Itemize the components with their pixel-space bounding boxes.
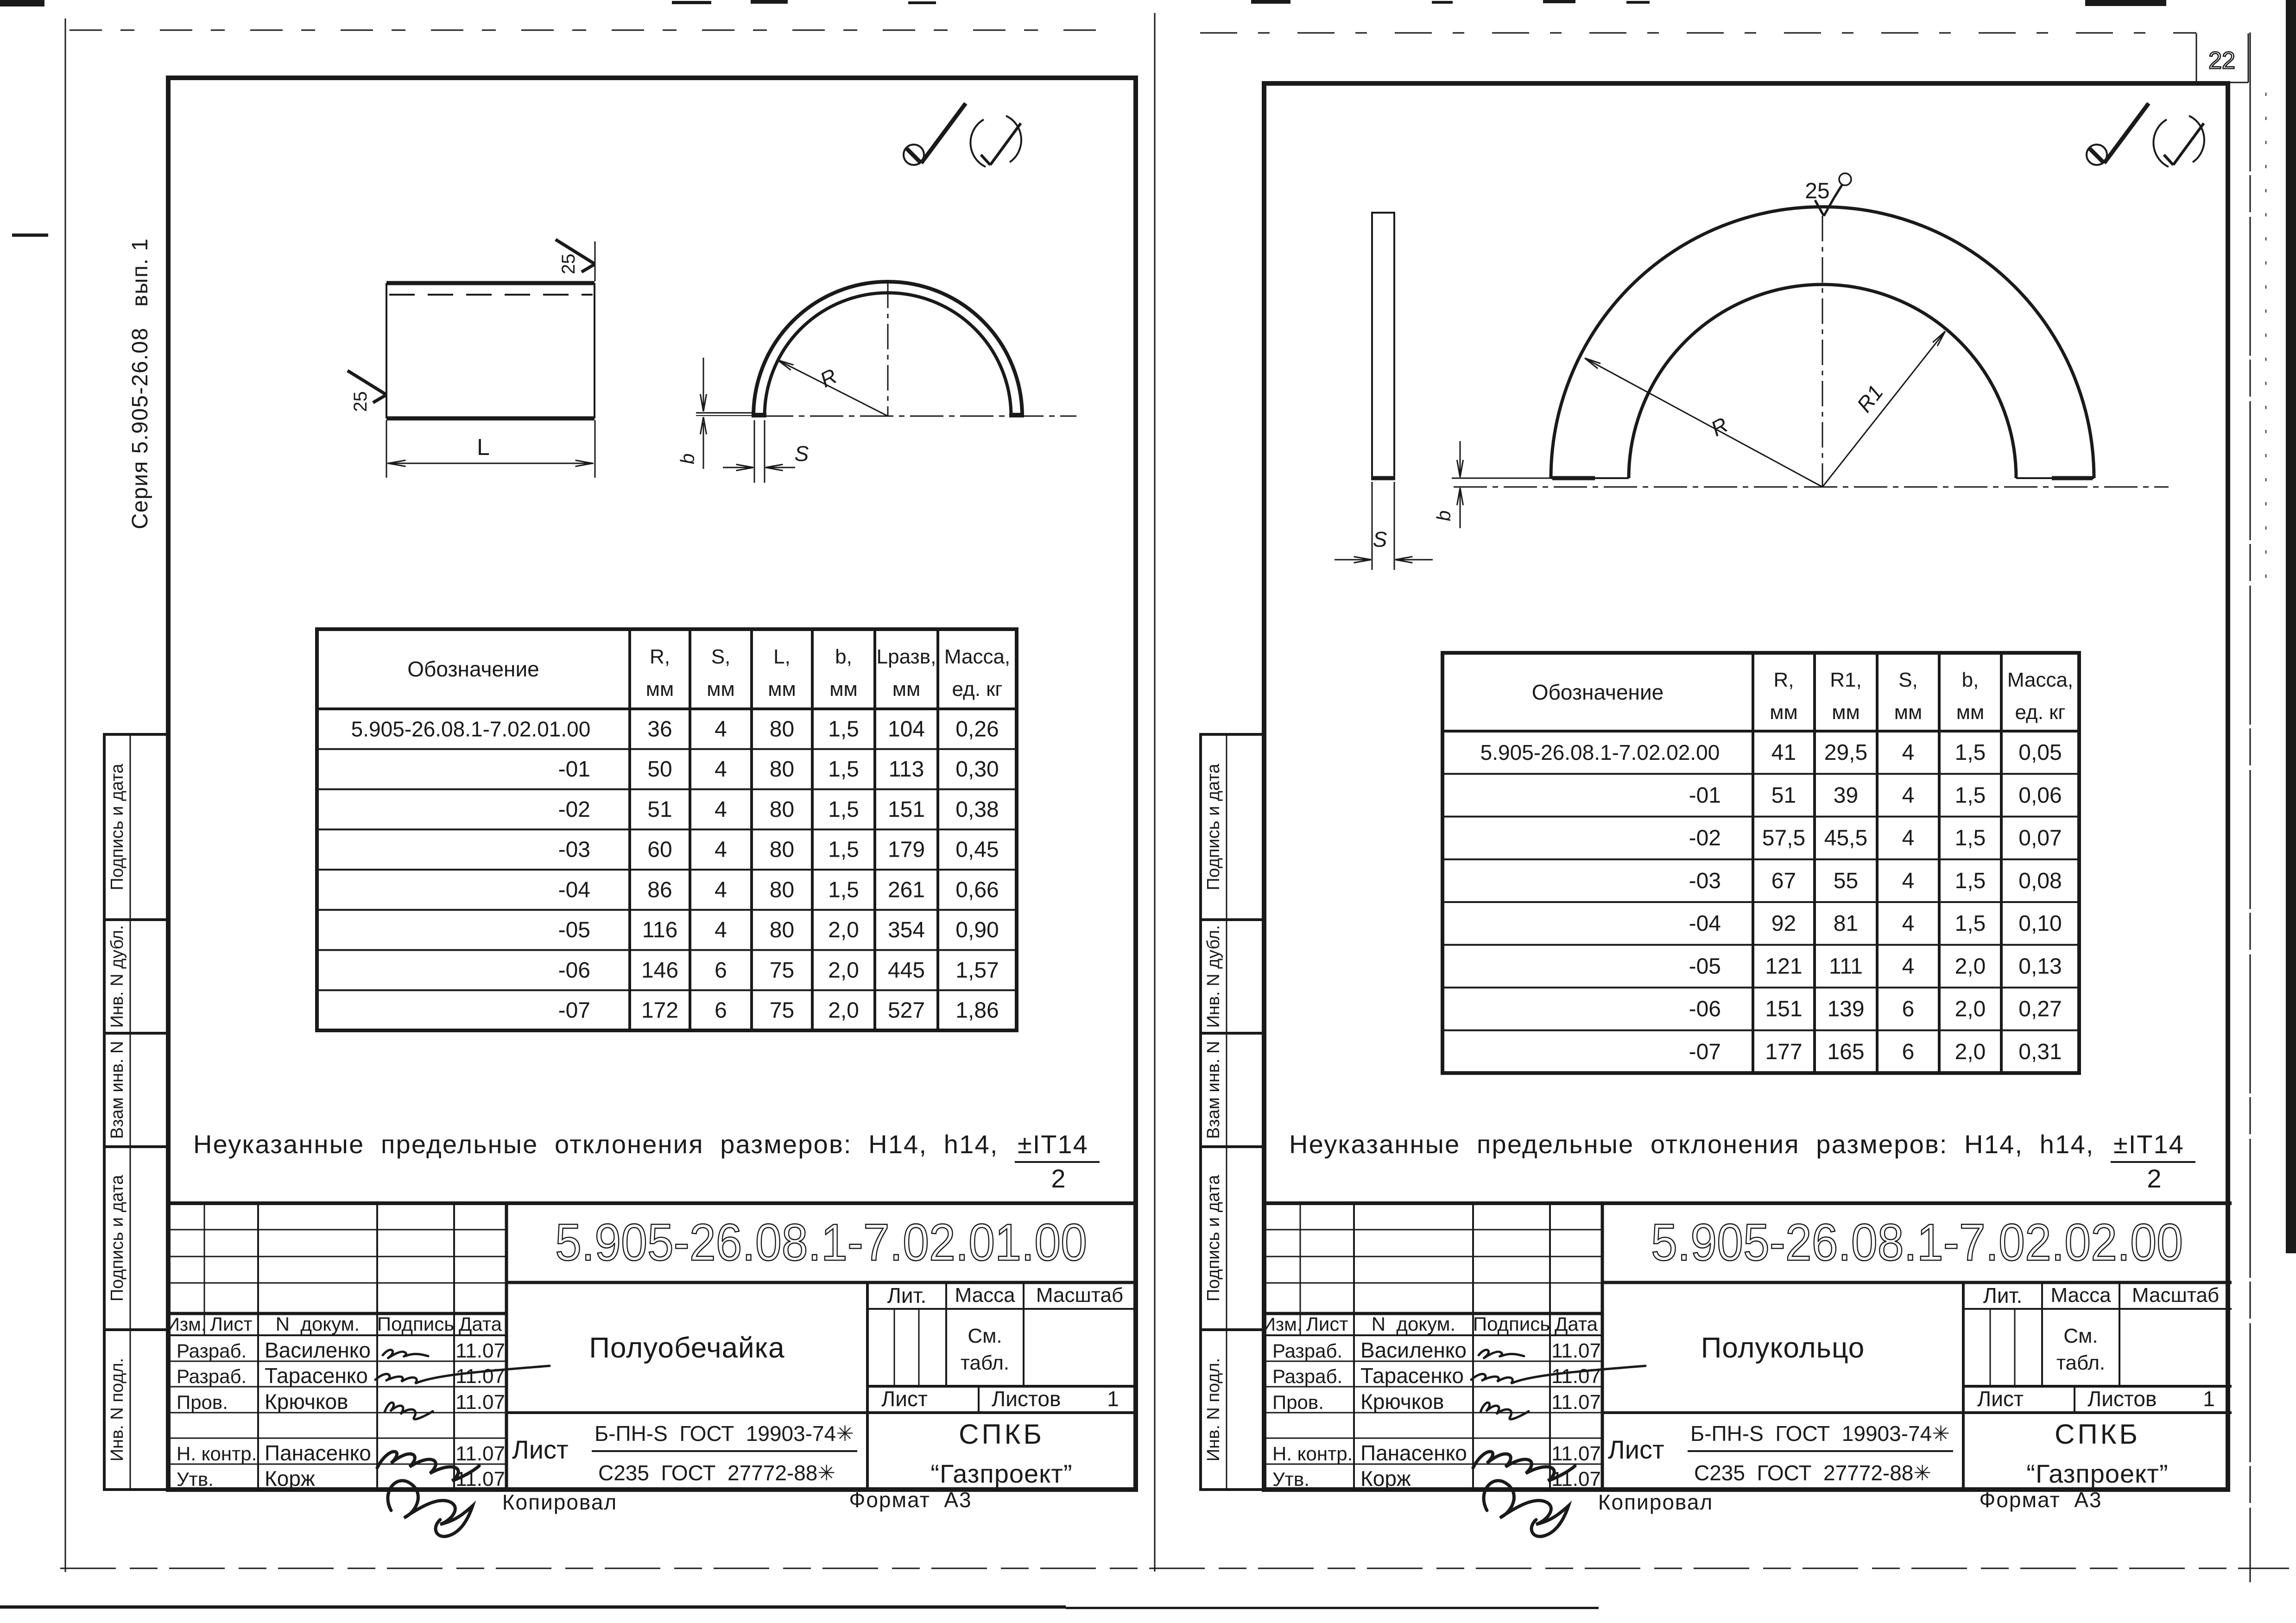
svg-text:Крючков: Крючков <box>265 1389 348 1414</box>
svg-text:Неуказанные предельные откло: Неуказанные предельные отклонения размер… <box>193 1130 999 1159</box>
svg-text:4: 4 <box>1902 869 1915 893</box>
svg-text:4: 4 <box>715 717 727 741</box>
svg-text:-05: -05 <box>558 918 590 942</box>
svg-text:0,10: 0,10 <box>2018 911 2062 936</box>
svg-text:1: 1 <box>1107 1387 1119 1411</box>
svg-text:L,: L, <box>773 645 791 668</box>
svg-text:1,5: 1,5 <box>828 757 859 782</box>
svg-text:6: 6 <box>715 958 727 983</box>
svg-text:R1,: R1, <box>1830 669 1861 691</box>
svg-text:151: 151 <box>1765 997 1802 1022</box>
svg-text:151: 151 <box>888 797 925 822</box>
svg-text:1,5: 1,5 <box>1955 783 1986 808</box>
svg-text:Разраб.: Разраб. <box>1272 1340 1342 1362</box>
svg-text:5.905-26.08.1-7.02.02.00: 5.905-26.08.1-7.02.02.00 <box>1480 740 1720 764</box>
svg-text:11.07: 11.07 <box>1551 1442 1601 1465</box>
svg-text:4: 4 <box>715 838 727 862</box>
svg-text:СПКБ: СПКБ <box>2055 1419 2140 1450</box>
svg-text:Масса,: Масса, <box>2007 669 2073 691</box>
svg-text:Утв.: Утв. <box>1272 1468 1309 1490</box>
svg-text:СПКБ: СПКБ <box>959 1419 1044 1450</box>
svg-text:0,66: 0,66 <box>955 878 999 902</box>
svg-text:Копировал: Копировал <box>502 1490 618 1514</box>
svg-text:ед. кг: ед. кг <box>952 678 1003 701</box>
svg-text:См.: См. <box>2063 1325 2098 1347</box>
svg-text:Лист: Лист <box>1608 1435 1664 1464</box>
svg-text:b: b <box>1433 511 1455 521</box>
svg-text:Масштаб: Масштаб <box>1036 1284 1123 1307</box>
svg-text:мм: мм <box>892 678 921 701</box>
svg-text:60: 60 <box>647 838 672 862</box>
svg-text:Подпись и дата: Подпись и дата <box>1204 763 1223 890</box>
svg-text:22: 22 <box>2208 47 2235 74</box>
svg-text:-04: -04 <box>1689 911 1721 936</box>
svg-text:11.07: 11.07 <box>1551 1391 1601 1414</box>
svg-text:80: 80 <box>770 757 794 782</box>
svg-text:92: 92 <box>1771 911 1796 936</box>
svg-text:45,5: 45,5 <box>1824 826 1867 851</box>
svg-text:“Газпроект”: “Газпроект” <box>930 1459 1072 1488</box>
svg-text:111: 111 <box>1829 954 1863 979</box>
svg-text:мм: мм <box>1770 701 1798 724</box>
svg-text:С235 ГОСТ 27772-88✳: С235 ГОСТ 27772-88✳ <box>1694 1461 1931 1485</box>
svg-text:-05: -05 <box>1689 954 1721 979</box>
svg-text:4: 4 <box>715 757 727 782</box>
svg-text:0,05: 0,05 <box>2018 740 2062 765</box>
svg-text:121: 121 <box>1765 954 1802 979</box>
svg-text:11.07: 11.07 <box>455 1365 505 1388</box>
svg-text:Б-ПН-S ГОСТ 19903-74✳: Б-ПН-S ГОСТ 19903-74✳ <box>595 1421 854 1446</box>
svg-text:1,5: 1,5 <box>828 797 859 822</box>
svg-text:мм: мм <box>1894 701 1923 724</box>
svg-text:4: 4 <box>1902 911 1915 936</box>
svg-text:S: S <box>1373 527 1387 551</box>
svg-text:4: 4 <box>715 918 727 942</box>
svg-text:S,: S, <box>1898 669 1918 691</box>
svg-text:Инв. N дубл.: Инв. N дубл. <box>1204 925 1223 1028</box>
svg-text:-06: -06 <box>558 958 590 983</box>
svg-text:мм: мм <box>1956 701 1985 724</box>
svg-text:2,0: 2,0 <box>1955 954 1986 979</box>
svg-text:57,5: 57,5 <box>1762 826 1805 851</box>
svg-text:Лист: Лист <box>512 1435 569 1464</box>
svg-text:41: 41 <box>1771 740 1796 765</box>
svg-text:Пров.: Пров. <box>1272 1391 1324 1413</box>
svg-text:2,0: 2,0 <box>1955 997 1986 1022</box>
svg-text:39: 39 <box>1834 783 1858 808</box>
svg-text:4: 4 <box>1902 740 1915 765</box>
svg-text:67: 67 <box>1771 869 1796 893</box>
svg-text:Масса: Масса <box>955 1284 1015 1307</box>
svg-text:0,31: 0,31 <box>2018 1040 2062 1064</box>
svg-text:-01: -01 <box>558 757 590 782</box>
svg-text:80: 80 <box>770 717 794 741</box>
svg-text:113: 113 <box>889 757 924 782</box>
svg-text:1,5: 1,5 <box>828 717 859 741</box>
svg-text:-03: -03 <box>1689 869 1721 893</box>
svg-text:мм: мм <box>829 678 858 701</box>
svg-text:0,08: 0,08 <box>2018 869 2062 893</box>
svg-text:0,07: 0,07 <box>2018 826 2062 851</box>
svg-text:1,86: 1,86 <box>955 998 999 1023</box>
svg-text:Взам инв. N: Взам инв. N <box>108 1041 127 1139</box>
svg-text:Разраб.: Разраб. <box>177 1340 247 1362</box>
svg-text:b,: b, <box>835 645 852 668</box>
svg-text:Пров.: Пров. <box>177 1391 228 1413</box>
svg-text:Крючков: Крючков <box>1360 1389 1444 1414</box>
svg-text:-07: -07 <box>1689 1040 1721 1064</box>
svg-text:6: 6 <box>1902 1040 1915 1064</box>
svg-text:527: 527 <box>888 998 925 1023</box>
svg-text:4: 4 <box>1902 954 1915 979</box>
svg-text:2,0: 2,0 <box>828 958 859 983</box>
svg-text:±IT14: ±IT14 <box>1018 1130 1088 1159</box>
svg-text:1,5: 1,5 <box>1955 740 1986 765</box>
svg-text:36: 36 <box>647 717 672 741</box>
svg-text:2,0: 2,0 <box>828 998 859 1023</box>
svg-text:445: 445 <box>888 958 925 983</box>
svg-text:1,5: 1,5 <box>1955 869 1986 893</box>
svg-text:-03: -03 <box>558 838 590 862</box>
svg-text:0,38: 0,38 <box>955 797 999 822</box>
svg-text:6: 6 <box>715 998 727 1023</box>
svg-text:1,5: 1,5 <box>1955 826 1986 851</box>
svg-text:50: 50 <box>647 757 672 782</box>
svg-text:R,: R, <box>650 645 670 668</box>
svg-text:Лит.: Лит. <box>1983 1283 2023 1307</box>
svg-text:116: 116 <box>642 918 678 942</box>
svg-text:2,0: 2,0 <box>1955 1040 1986 1064</box>
svg-text:51: 51 <box>647 797 672 822</box>
svg-text:Полукольцо: Полукольцо <box>1701 1332 1865 1364</box>
svg-text:Б-ПН-S ГОСТ 19903-74✳: Б-ПН-S ГОСТ 19903-74✳ <box>1690 1421 1950 1446</box>
svg-text:Масштаб: Масштаб <box>2132 1284 2219 1307</box>
svg-text:165: 165 <box>1827 1040 1864 1064</box>
svg-text:Инв. N подл.: Инв. N подл. <box>108 1358 127 1461</box>
svg-text:Подпись и дата: Подпись и дата <box>108 1175 127 1301</box>
svg-text:Корж: Корж <box>1360 1466 1411 1490</box>
svg-text:Лист: Лист <box>881 1387 928 1411</box>
svg-text:Подпись: Подпись <box>377 1313 454 1335</box>
svg-text:См.: См. <box>968 1325 1002 1347</box>
svg-text:L: L <box>477 434 490 460</box>
svg-text:Инв. N дубл.: Инв. N дубл. <box>108 925 127 1028</box>
svg-text:0,26: 0,26 <box>955 717 999 741</box>
svg-text:80: 80 <box>770 878 794 902</box>
svg-text:мм: мм <box>646 678 674 701</box>
svg-text:Инв. N подл.: Инв. N подл. <box>1204 1358 1223 1461</box>
svg-text:Разраб.: Разраб. <box>1272 1365 1342 1387</box>
svg-text:Масса,: Масса, <box>944 645 1010 668</box>
svg-text:0,30: 0,30 <box>955 757 999 782</box>
svg-text:Василенко: Василенко <box>265 1338 371 1362</box>
svg-text:261: 261 <box>888 878 925 902</box>
svg-text:Изм.: Изм. <box>1262 1314 1302 1335</box>
svg-text:11.07: 11.07 <box>455 1339 505 1362</box>
svg-text:Василенко: Василенко <box>1360 1338 1467 1362</box>
svg-text:Обозначение: Обозначение <box>407 657 539 681</box>
svg-text:5.905-26.08.1-7.02.02.00: 5.905-26.08.1-7.02.02.00 <box>1651 1213 2183 1271</box>
svg-text:Утв.: Утв. <box>177 1468 214 1490</box>
svg-text:Дата: Дата <box>1555 1313 1598 1335</box>
svg-text:Неуказанные предельные откло: Неуказанные предельные отклонения размер… <box>1289 1130 2094 1159</box>
svg-text:5.905-26.08.1-7.02.01.00: 5.905-26.08.1-7.02.01.00 <box>351 717 591 741</box>
svg-text:80: 80 <box>770 797 794 822</box>
svg-text:146: 146 <box>641 958 678 983</box>
svg-text:11.07: 11.07 <box>455 1391 505 1414</box>
svg-text:172: 172 <box>641 998 678 1023</box>
svg-text:Тарасенко: Тарасенко <box>265 1364 368 1388</box>
svg-text:-07: -07 <box>558 998 590 1023</box>
svg-text:Листов: Листов <box>992 1387 1061 1411</box>
svg-text:N докум.: N докум. <box>1372 1313 1455 1335</box>
svg-text:Дата: Дата <box>459 1313 502 1335</box>
svg-text:80: 80 <box>770 918 794 942</box>
svg-text:Взам инв. N: Взам инв. N <box>1204 1041 1223 1139</box>
svg-text:Панасенко: Панасенко <box>1360 1441 1467 1465</box>
svg-text:С235 ГОСТ 27772-88✳: С235 ГОСТ 27772-88✳ <box>598 1461 835 1485</box>
svg-text:11.07: 11.07 <box>1551 1468 1601 1490</box>
svg-text:Н. контр.: Н. контр. <box>1272 1443 1353 1465</box>
svg-text:ед. кг: ед. кг <box>2015 701 2066 724</box>
svg-text:86: 86 <box>647 878 672 902</box>
svg-text:-04: -04 <box>558 878 590 902</box>
svg-text:2: 2 <box>1051 1164 1065 1193</box>
svg-text:Подпись и дата: Подпись и дата <box>1204 1175 1223 1301</box>
svg-text:-01: -01 <box>1689 783 1721 808</box>
svg-text:S,: S, <box>711 645 731 668</box>
svg-text:N докум.: N докум. <box>276 1313 360 1335</box>
svg-text:4: 4 <box>1902 826 1915 851</box>
svg-text:179: 179 <box>888 838 925 862</box>
svg-text:табл.: табл. <box>2056 1351 2105 1374</box>
svg-text:6: 6 <box>1902 997 1915 1022</box>
svg-text:Подпись и дата: Подпись и дата <box>108 763 127 890</box>
svg-text:11.07: 11.07 <box>455 1468 505 1490</box>
svg-text:4: 4 <box>1902 783 1915 808</box>
svg-text:0,06: 0,06 <box>2018 783 2062 808</box>
svg-text:75: 75 <box>770 998 794 1023</box>
svg-text:Корж: Корж <box>265 1466 315 1490</box>
svg-text:104: 104 <box>888 717 925 741</box>
svg-text:81: 81 <box>1834 911 1858 936</box>
svg-text:4: 4 <box>715 797 727 822</box>
svg-text:табл.: табл. <box>961 1351 1009 1374</box>
svg-text:Формат А3: Формат А3 <box>1979 1488 2102 1512</box>
svg-text:Полуобечайка: Полуобечайка <box>589 1332 784 1364</box>
svg-text:мм: мм <box>1832 701 1860 724</box>
svg-text:Копировал: Копировал <box>1598 1490 1714 1514</box>
svg-text:1,5: 1,5 <box>828 878 859 902</box>
svg-text:0,90: 0,90 <box>955 918 999 942</box>
svg-text:Лист: Лист <box>210 1313 252 1335</box>
svg-text:29,5: 29,5 <box>1824 740 1867 765</box>
svg-text:R,: R, <box>1774 669 1794 691</box>
svg-text:Серия 5.905-26.08 вып. 1: Серия 5.905-26.08 вып. 1 <box>128 238 152 530</box>
svg-text:354: 354 <box>888 918 925 942</box>
svg-text:1,5: 1,5 <box>1955 911 1986 936</box>
svg-text:75: 75 <box>770 958 794 983</box>
svg-text:Обозначение: Обозначение <box>1532 680 1664 704</box>
svg-text:51: 51 <box>1771 783 1796 808</box>
svg-text:177: 177 <box>1765 1040 1802 1064</box>
svg-text:11.07: 11.07 <box>455 1442 505 1465</box>
svg-text:b,: b, <box>1962 669 1979 691</box>
svg-text:5.905-26.08.1-7.02.01.00: 5.905-26.08.1-7.02.01.00 <box>555 1213 1087 1271</box>
svg-text:4: 4 <box>715 878 727 902</box>
svg-text:-06: -06 <box>1689 997 1721 1022</box>
svg-text:Лит.: Лит. <box>887 1283 927 1307</box>
svg-text:1,5: 1,5 <box>828 838 859 862</box>
svg-text:±IT14: ±IT14 <box>2113 1130 2184 1159</box>
svg-text:Лист: Лист <box>1306 1313 1348 1335</box>
svg-text:55: 55 <box>1834 869 1858 893</box>
svg-text:139: 139 <box>1827 997 1864 1022</box>
svg-text:-02: -02 <box>1689 826 1721 851</box>
svg-text:2,0: 2,0 <box>828 918 859 942</box>
svg-text:Изм.: Изм. <box>166 1314 206 1335</box>
svg-text:11.07: 11.07 <box>1551 1365 1601 1388</box>
svg-text:Подпись: Подпись <box>1473 1313 1550 1335</box>
svg-text:2: 2 <box>2147 1164 2161 1193</box>
svg-text:0,45: 0,45 <box>955 838 999 862</box>
svg-text:Разраб.: Разраб. <box>177 1365 247 1387</box>
svg-text:0,27: 0,27 <box>2018 997 2062 1022</box>
svg-text:Lразв,: Lразв, <box>877 645 936 668</box>
svg-text:b: b <box>677 454 698 464</box>
svg-text:0,13: 0,13 <box>2018 954 2062 979</box>
svg-text:Н. контр.: Н. контр. <box>177 1443 257 1465</box>
svg-text:11.07: 11.07 <box>1551 1339 1601 1362</box>
svg-text:мм: мм <box>707 678 735 701</box>
svg-text:Масса: Масса <box>2050 1284 2111 1307</box>
svg-text:Листов: Листов <box>2087 1387 2157 1411</box>
svg-text:Лист: Лист <box>1977 1387 2024 1411</box>
svg-text:1: 1 <box>2203 1387 2215 1411</box>
svg-text:25: 25 <box>558 254 579 275</box>
svg-text:Формат А3: Формат А3 <box>849 1488 972 1512</box>
svg-text:“Газпроект”: “Газпроект” <box>2026 1459 2168 1488</box>
svg-text:-02: -02 <box>558 797 590 822</box>
svg-text:S: S <box>795 442 809 466</box>
svg-text:Тарасенко: Тарасенко <box>1360 1364 1464 1388</box>
svg-text:мм: мм <box>768 678 796 701</box>
svg-text:Панасенко: Панасенко <box>265 1441 371 1465</box>
svg-text:1,57: 1,57 <box>955 958 999 983</box>
svg-text:80: 80 <box>770 838 794 862</box>
svg-text:25: 25 <box>350 392 371 412</box>
svg-text:25: 25 <box>1805 179 1829 203</box>
